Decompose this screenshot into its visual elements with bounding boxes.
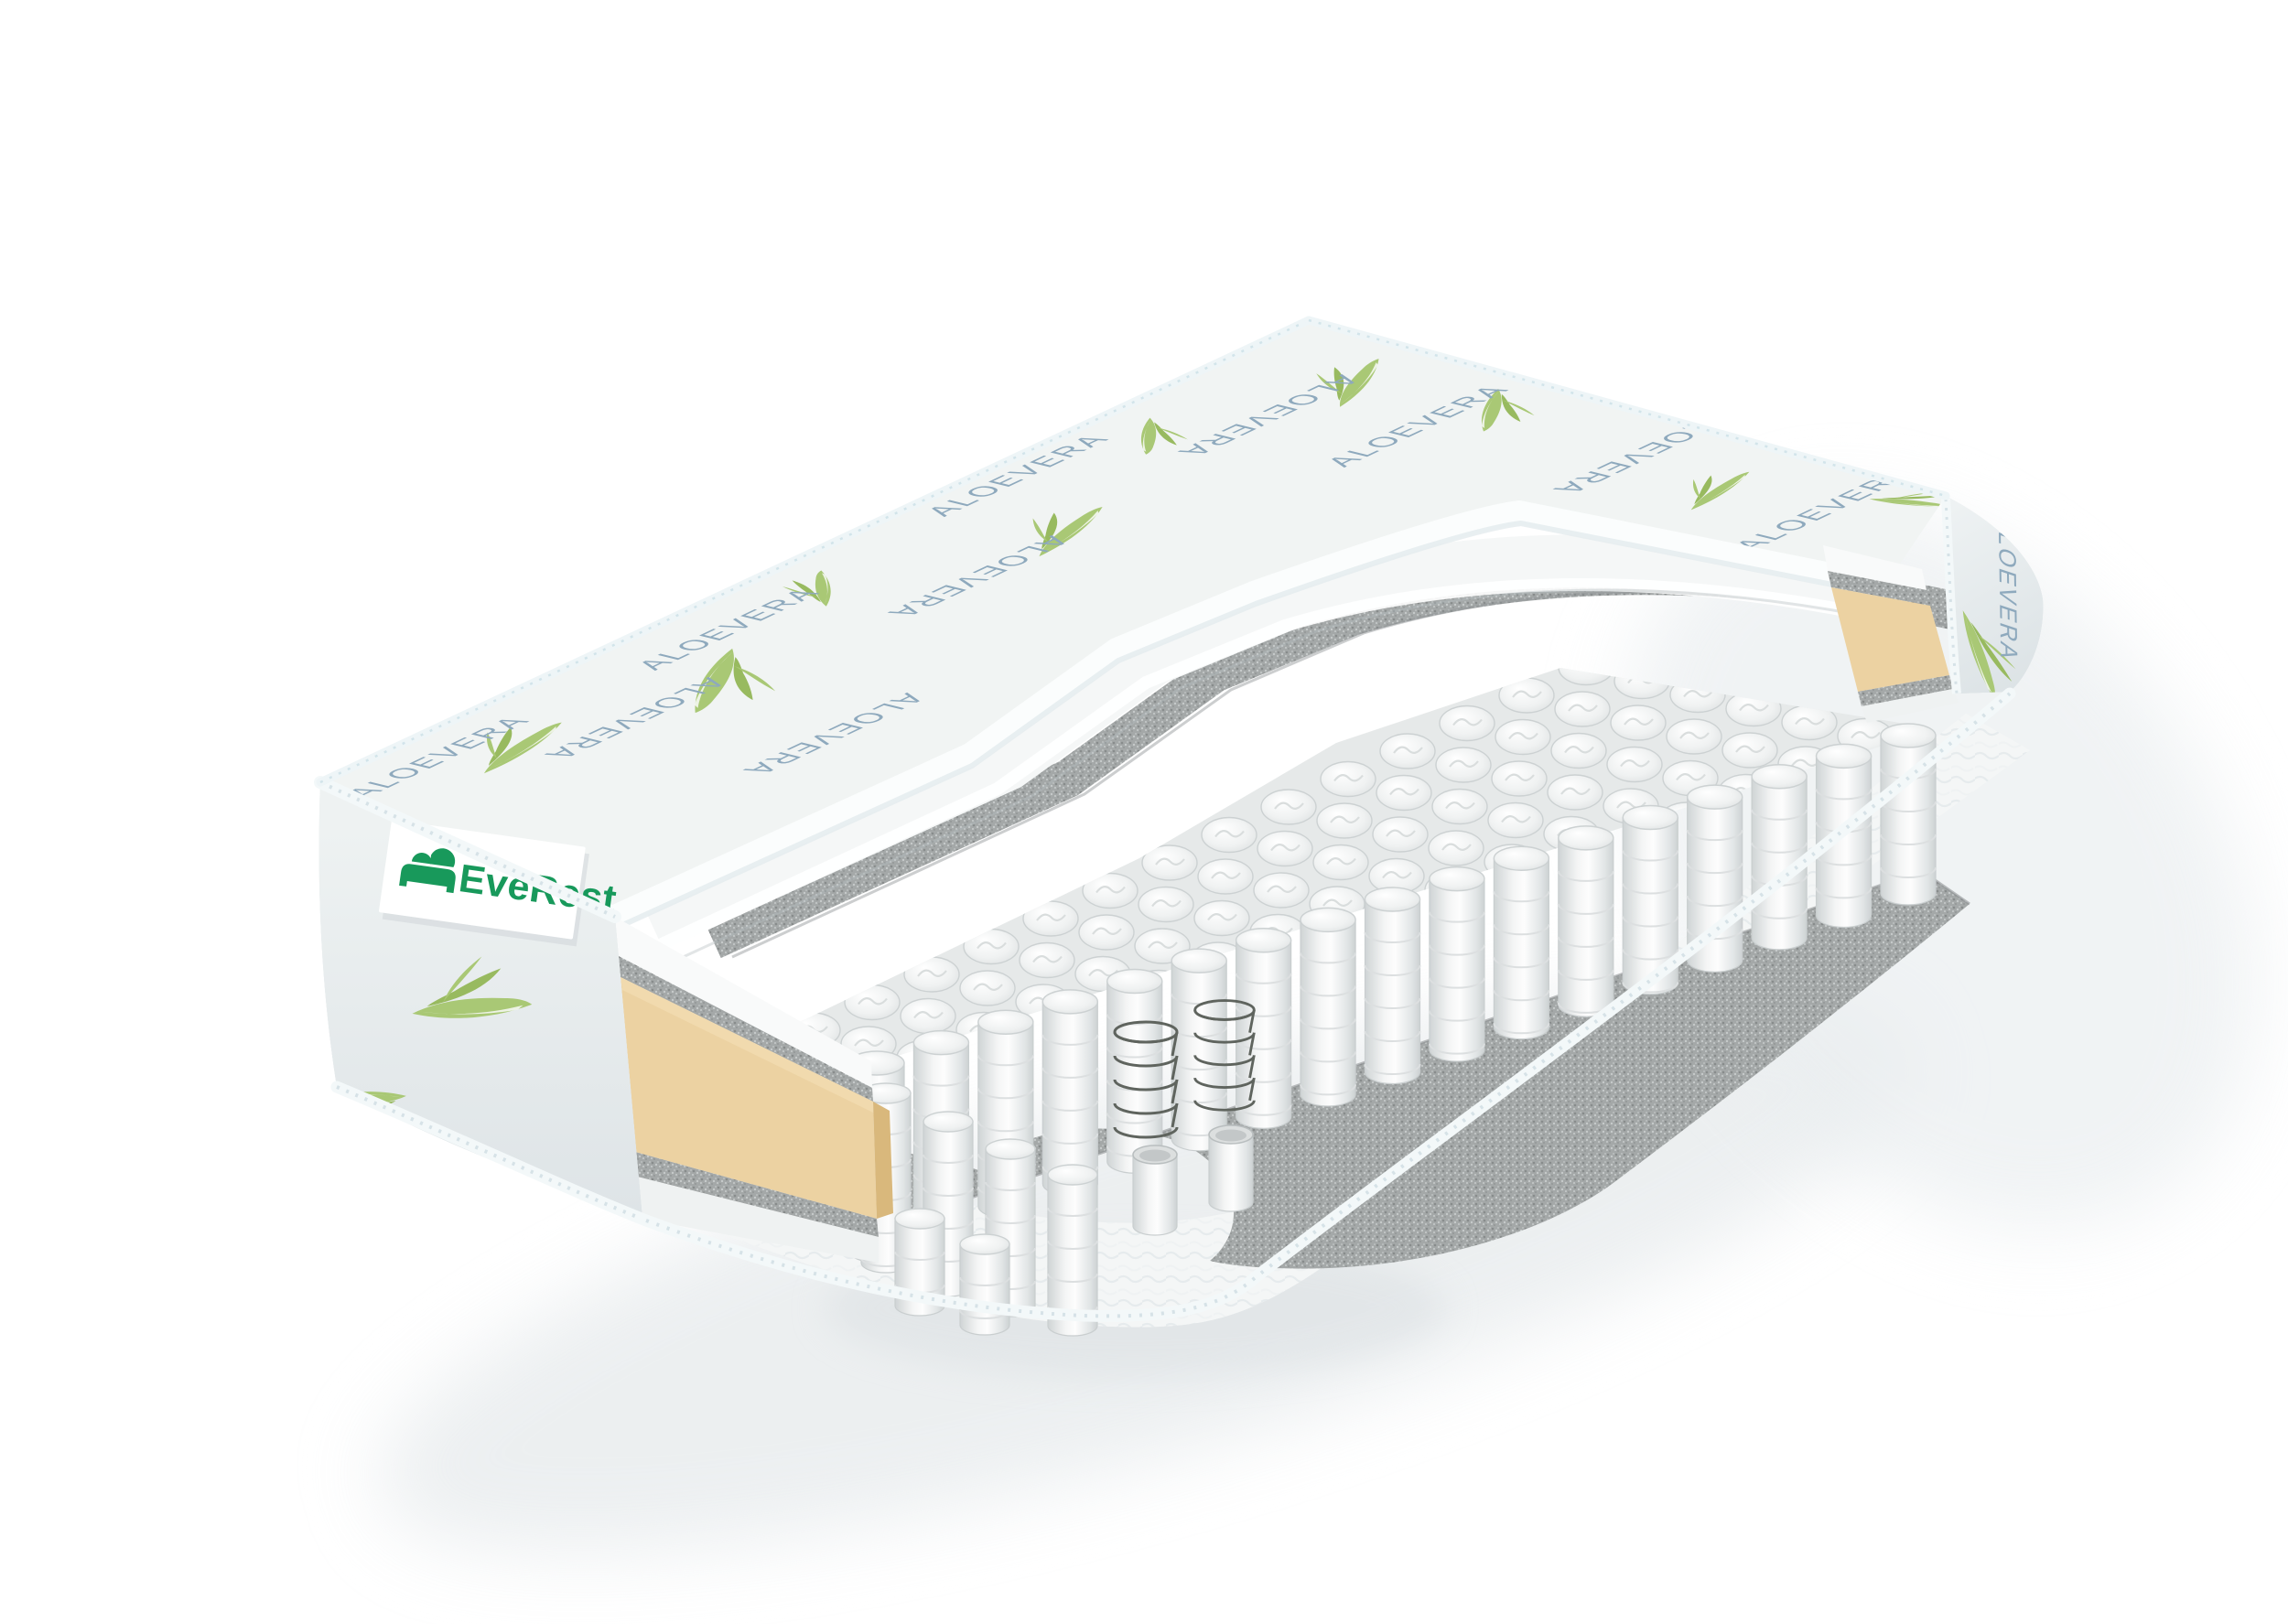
pocket-spring-cylinder — [1107, 970, 1162, 1174]
spring-top — [1261, 790, 1316, 824]
spring-top — [1607, 747, 1662, 782]
side-panel-quilting — [1946, 496, 2043, 694]
pocket-spring-cylinder — [1559, 826, 1613, 1016]
spring-top — [1492, 761, 1547, 796]
spring-top — [1440, 706, 1495, 741]
spring-top — [1257, 832, 1312, 866]
pocket-spring-cylinder — [960, 1234, 1009, 1335]
spring-top — [1376, 776, 1431, 811]
pocket-spring-cylinder — [1300, 908, 1355, 1106]
spring-top — [1548, 775, 1603, 810]
spring-top — [1555, 692, 1610, 726]
spring-top — [1254, 873, 1309, 908]
spring-top — [964, 930, 1019, 964]
spring-top — [1429, 831, 1484, 866]
pocket-spring-cylinder — [1430, 867, 1484, 1061]
spring-top — [901, 999, 955, 1034]
spring-top — [1488, 803, 1543, 838]
pocket-spring-cylinder — [1365, 887, 1420, 1084]
spring-top — [1667, 719, 1721, 754]
spring-top — [1023, 901, 1078, 936]
mattress-cutaway-render: ALOEVERA ALOEVERA ALOEVERA ALOEVERA ALOE… — [0, 0, 2288, 1624]
spring-top — [1139, 887, 1193, 922]
pocket-spring-cylinder — [1171, 949, 1226, 1151]
pocket-spring-cylinder — [1752, 765, 1807, 950]
spring-top — [1317, 803, 1372, 838]
open-pocket — [1209, 1125, 1253, 1211]
spring-top — [1020, 943, 1074, 978]
spring-top — [1142, 845, 1197, 880]
spring-top — [1373, 817, 1428, 852]
spring-top — [1495, 720, 1550, 755]
spring-top — [1722, 733, 1777, 768]
spring-top — [1499, 678, 1554, 713]
spring-top — [1198, 859, 1253, 894]
spring-top — [1083, 874, 1138, 909]
spring-top-fold — [1572, 663, 1601, 669]
spring-top — [960, 971, 1015, 1006]
spring-top — [1079, 915, 1134, 950]
fabric-text: ALOEVERA — [1993, 511, 2023, 666]
spring-top — [904, 957, 959, 992]
open-pocket — [1133, 1145, 1177, 1235]
spring-top — [1436, 747, 1491, 782]
spring-top — [1551, 734, 1606, 769]
spring-top — [1321, 762, 1376, 797]
spring-top — [1380, 734, 1435, 769]
spring-top — [1559, 651, 1613, 685]
left-cut-wall — [615, 917, 893, 1263]
spring-top — [845, 985, 900, 1020]
spring-top — [1611, 705, 1666, 740]
spring-top — [1202, 818, 1257, 853]
spring-top — [1432, 790, 1487, 824]
pocket-spring-cylinder — [1494, 846, 1549, 1038]
spring-top — [1194, 901, 1249, 936]
pocket-spring-cylinder — [1881, 724, 1936, 905]
spring-top — [1313, 845, 1368, 880]
pocket-spring-cylinder — [1236, 929, 1291, 1129]
